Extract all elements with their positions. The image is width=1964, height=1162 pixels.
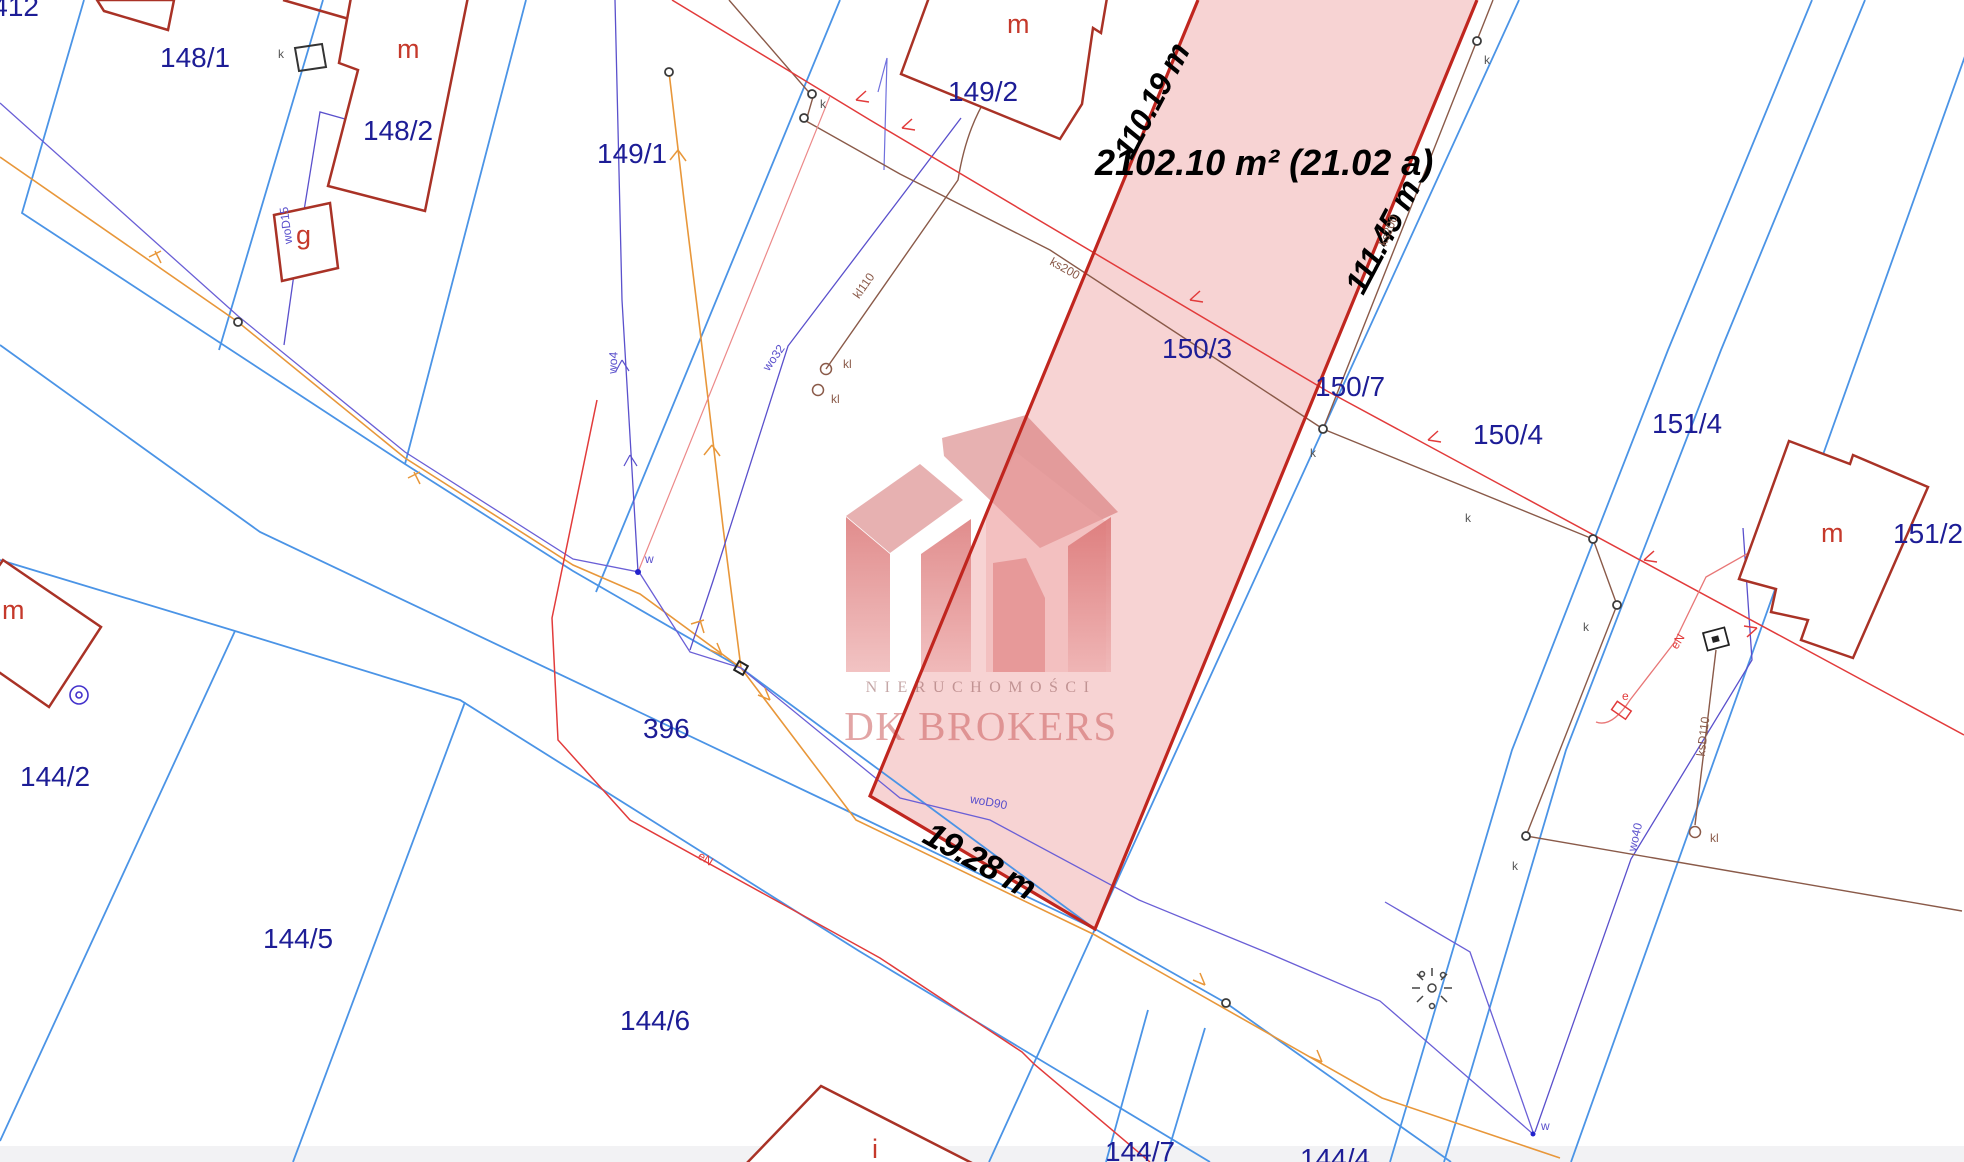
svg-text:m: m [1007,9,1030,39]
svg-text:148/2: 148/2 [363,115,433,146]
svg-text:e: e [1622,689,1629,703]
svg-text:i: i [872,1134,878,1162]
svg-text:g: g [296,220,311,250]
svg-text:2102.10 m² (21.02 a): 2102.10 m² (21.02 a) [1094,142,1433,183]
svg-text:NIERUCHOMOŚCI: NIERUCHOMOŚCI [866,677,1097,696]
svg-text:144/7: 144/7 [1105,1136,1175,1162]
svg-text:w: w [1540,1119,1550,1133]
svg-text:150/7: 150/7 [1315,371,1385,402]
svg-text:k: k [1465,511,1472,525]
svg-text:kl: kl [843,357,852,371]
svg-text:144/5: 144/5 [263,923,333,954]
svg-text:412: 412 [0,0,39,22]
svg-text:150/4: 150/4 [1473,419,1543,450]
svg-text:k: k [1484,53,1491,67]
svg-text:144/2: 144/2 [20,761,90,792]
svg-text:144/6: 144/6 [620,1005,690,1036]
svg-text:149/2: 149/2 [948,76,1018,107]
svg-text:wo4: wo4 [605,351,620,375]
svg-text:k: k [820,97,827,111]
svg-text:396: 396 [643,713,690,744]
svg-text:150/3: 150/3 [1162,333,1232,364]
svg-text:149/1: 149/1 [597,138,667,169]
svg-text:m: m [397,34,420,64]
svg-text:148/1: 148/1 [160,42,230,73]
svg-text:k: k [1512,859,1519,873]
svg-text:151/2: 151/2 [1893,518,1963,549]
svg-text:k: k [1310,446,1317,460]
svg-text:kl: kl [831,392,840,406]
svg-text:w: w [644,552,654,566]
svg-text:144/4: 144/4 [1300,1143,1370,1162]
svg-text:kl: kl [1710,831,1719,845]
svg-text:151/4: 151/4 [1652,408,1722,439]
svg-text:k: k [278,47,285,61]
svg-text:m: m [2,595,25,625]
svg-text:k: k [1583,620,1590,634]
svg-text:m: m [1821,518,1844,548]
svg-text:DK BROKERS: DK BROKERS [844,703,1118,749]
